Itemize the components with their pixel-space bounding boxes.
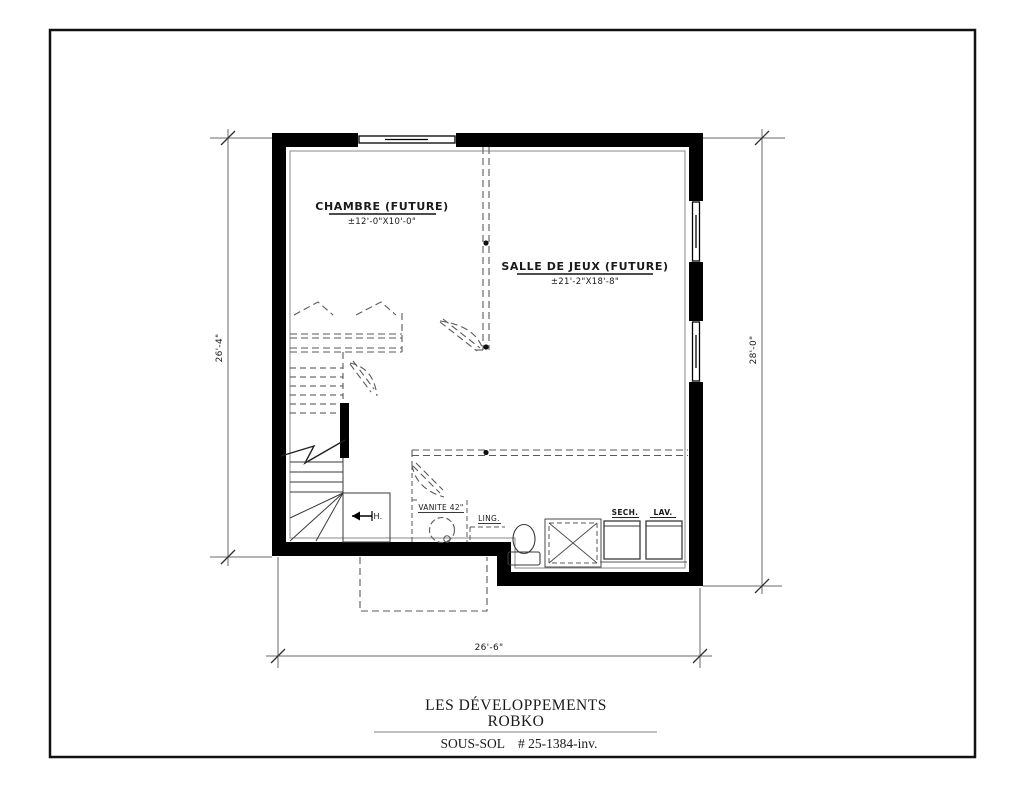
partition-dot-3	[483, 450, 488, 455]
dryer-label: SECH.	[612, 508, 639, 517]
window-top-icon	[352, 133, 462, 147]
linen-label: LING.	[478, 514, 500, 523]
window-right-lower-icon	[689, 315, 703, 388]
partition-dot	[483, 240, 488, 245]
stair-wall	[340, 403, 349, 458]
project-number: # 25-1384-inv.	[518, 736, 597, 751]
dimension-left-label: 26'-4"	[215, 334, 225, 363]
room-size: ±21'-2"X18'-8"	[551, 277, 619, 287]
vanity-label: VANITE 42"	[418, 503, 463, 512]
company-name-line2: ROBKO	[488, 713, 545, 730]
room-name: SALLE DE JEUX (FUTURE)	[501, 260, 668, 273]
drawing-sheet: H. VANITE 42" LING.	[0, 0, 1024, 791]
company-name-line1: LES DÉVELOPPEMENTS	[425, 697, 607, 714]
room-name: CHAMBRE (FUTURE)	[315, 200, 448, 213]
floor-plan-canvas: H. VANITE 42" LING.	[0, 0, 1024, 791]
partition-dot-2	[483, 344, 488, 349]
washer-label: LAV.	[654, 508, 673, 517]
window-right-upper-icon	[689, 195, 703, 268]
room-size: ±12'-0"X10'-0"	[348, 217, 416, 227]
dimension-right-label: 28'-0"	[749, 336, 759, 365]
stair-direction-label: H.	[373, 512, 382, 521]
dimension-bottom-label: 26'-6"	[475, 643, 504, 653]
sheet-name: SOUS-SOL	[440, 736, 505, 751]
